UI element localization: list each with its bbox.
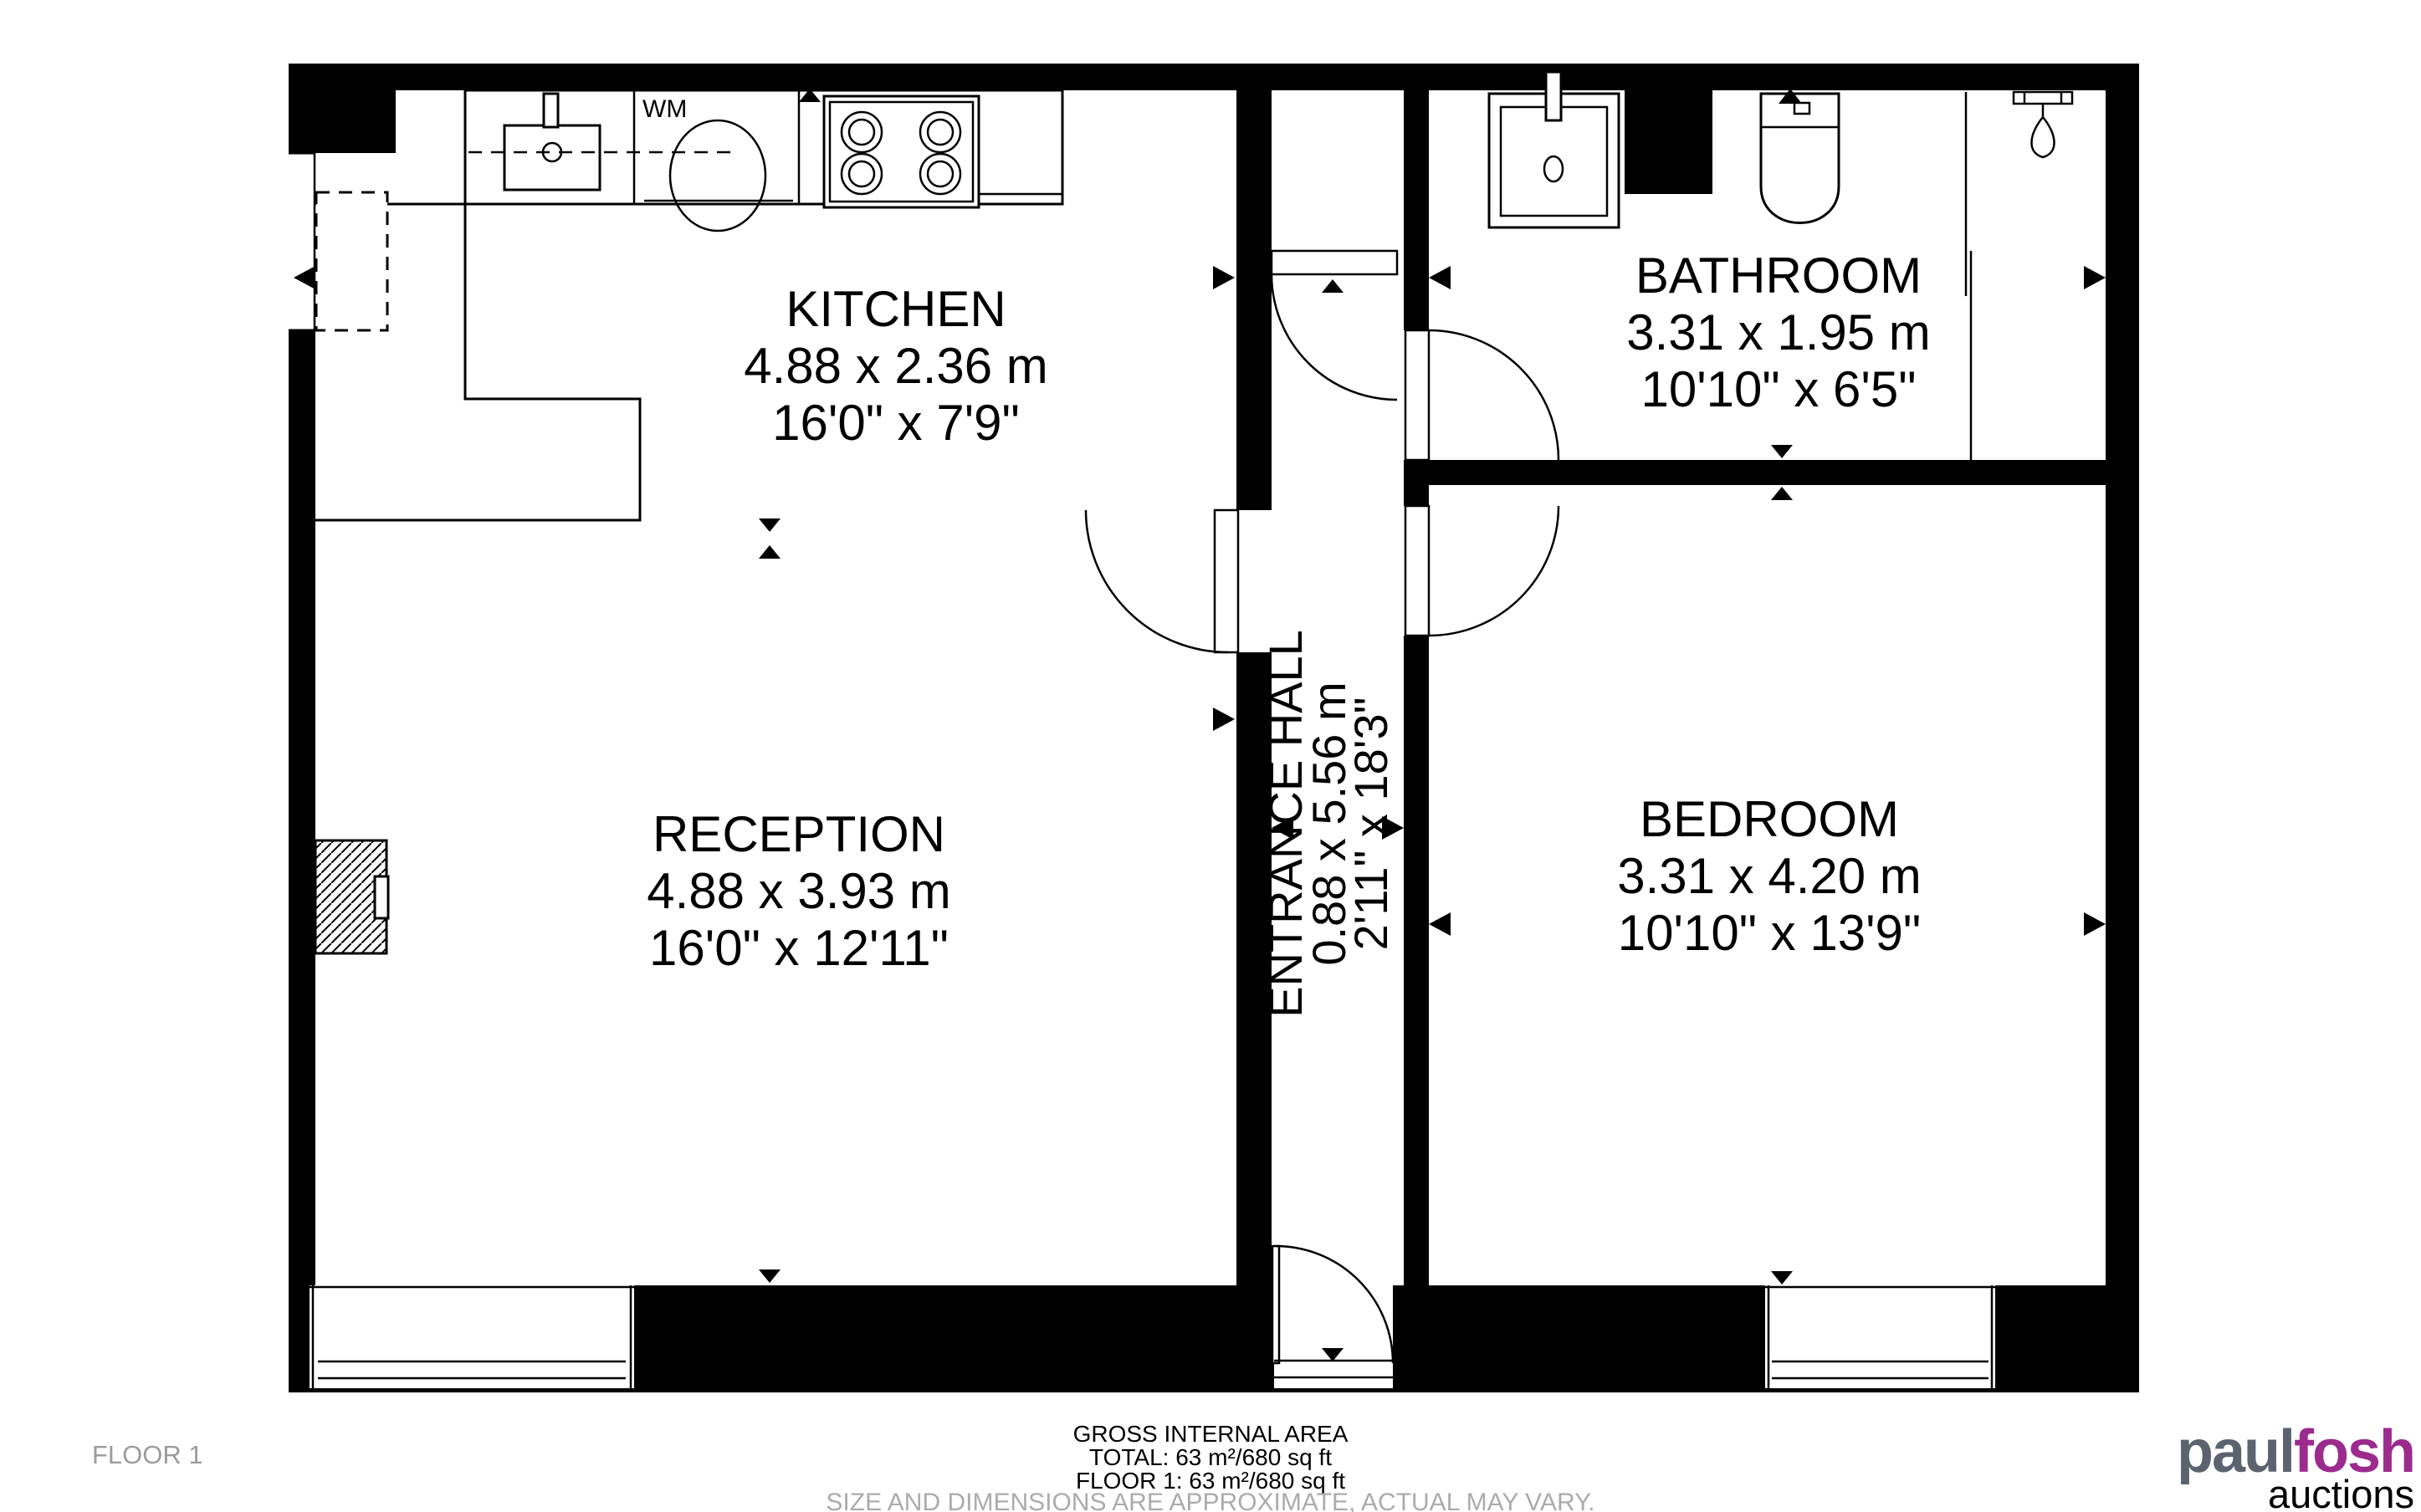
door-swing-arc xyxy=(1429,330,1559,460)
dim-arrow-bathroom-down xyxy=(1771,445,1793,458)
floor-label: FLOOR 1 xyxy=(92,1440,203,1469)
wall-top xyxy=(289,64,2139,90)
room-name: BATHROOM xyxy=(1635,248,1922,304)
washing-machine-icon: WM xyxy=(642,95,793,231)
dim-arrow-bedroom-left xyxy=(1429,912,1451,936)
wall-bottom-3 xyxy=(1393,1285,1765,1392)
dim-arrow-reception-down xyxy=(759,1269,781,1283)
kitchen-window xyxy=(289,153,315,330)
dim-arrow-kitchen-right xyxy=(1213,266,1235,289)
sink-icon xyxy=(468,94,736,190)
room-name: KITCHEN xyxy=(786,281,1006,337)
toilet-icon xyxy=(1761,94,1839,223)
wall-bathroom-bedroom-divider xyxy=(1429,460,2106,485)
dim-arrow-kitchen-left xyxy=(294,266,315,289)
room-label-bathroom: BATHROOM 3.31 x 1.95 m 10'10" x 6'5" xyxy=(1626,248,1931,417)
wall-bottom-1 xyxy=(289,1285,310,1392)
area-total: TOTAL: 63 m²/680 sq ft xyxy=(1089,1444,1332,1470)
brand-logo: paulfosh auctions xyxy=(2177,1418,2414,1512)
reception-fixtures xyxy=(315,840,388,953)
door-leaf xyxy=(1405,330,1429,460)
shower-icon xyxy=(1966,92,2072,460)
room-name: BEDROOM xyxy=(1640,791,1899,847)
door-swing-arc xyxy=(1276,1246,1393,1363)
room-label-kitchen: KITCHEN 4.88 x 2.36 m 16'0" x 7'9" xyxy=(744,281,1048,451)
dim-arrow-bathroom-left xyxy=(1429,266,1451,289)
logo-auctions: auctions xyxy=(2268,1472,2414,1512)
under-counter-appliance xyxy=(316,192,387,330)
hob-icon xyxy=(824,96,979,207)
dim-arrow-bedroom-up xyxy=(1771,487,1793,500)
wall-edge-strip-reception xyxy=(310,1388,634,1392)
wall-hall-right-stub xyxy=(1404,460,1429,506)
wall-left-upper xyxy=(289,90,315,153)
room-dims-imperial: 2'11" x 18'3" xyxy=(1344,697,1397,951)
dim-arrow-hall-up xyxy=(1322,279,1344,293)
door-swing-arc xyxy=(1272,274,1397,400)
room-dims-metric: 4.88 x 2.36 m xyxy=(744,338,1048,394)
wall-right xyxy=(2106,90,2139,1285)
chimney-notch xyxy=(375,876,388,918)
wall-bathroom-stub xyxy=(1625,90,1712,194)
room-dims-metric: 4.88 x 3.93 m xyxy=(647,863,951,919)
room-dims-imperial: 16'0" x 7'9" xyxy=(772,395,1020,451)
wall-bottom-4 xyxy=(1995,1285,2139,1392)
door-leaf xyxy=(1272,1246,1279,1363)
gross-internal-area-title: GROSS INTERNAL AREA xyxy=(1073,1421,1349,1447)
room-dims-metric: 3.31 x 1.95 m xyxy=(1626,304,1931,360)
room-label-entrance-hall: ENTRANCE HALL 0.88 x 5.56 m 2'11" x 18'3… xyxy=(1259,630,1397,1018)
wall-edge-strip-frontdoor xyxy=(1274,1388,1393,1392)
room-label-bedroom: BEDROOM 3.31 x 4.20 m 10'10" x 13'9" xyxy=(1617,791,1922,961)
door-swing-arc xyxy=(1086,510,1228,652)
reception-window xyxy=(310,1285,634,1388)
dim-arrow-kitchen-down xyxy=(759,518,781,532)
wall-hall-right-upper xyxy=(1404,90,1429,330)
room-dims-imperial: 16'0" x 12'11" xyxy=(649,920,949,976)
dim-arrow-reception-right xyxy=(1213,707,1235,731)
dim-arrow-hall-down xyxy=(1322,1348,1344,1361)
room-name: RECEPTION xyxy=(653,806,945,862)
wall-hall-right-lower xyxy=(1404,636,1429,1285)
wall-bottom-2 xyxy=(634,1285,1274,1392)
floorplan-page: WM xyxy=(0,0,2421,1512)
bedroom-door xyxy=(1405,506,1559,636)
door-leaf xyxy=(1215,510,1238,652)
footer: FLOOR 1 GROSS INTERNAL AREA TOTAL: 63 m²… xyxy=(92,1421,1595,1512)
dim-arrow-bedroom-down xyxy=(1771,1271,1793,1285)
basin-icon xyxy=(1489,72,1619,227)
room-dims-imperial: 10'10" x 13'9" xyxy=(1618,905,1921,961)
reception-door xyxy=(1086,510,1238,652)
disclaimer: SIZE AND DIMENSIONS ARE APPROXIMATE, ACT… xyxy=(826,1489,1594,1512)
dim-arrow-bathroom-right xyxy=(2084,266,2106,289)
door-swing-arc xyxy=(1429,506,1559,636)
wall-left-lower xyxy=(289,330,315,1285)
room-dims-metric: 3.31 x 4.20 m xyxy=(1617,848,1922,904)
door-leaf xyxy=(1405,506,1429,636)
dim-arrow-bedroom-right xyxy=(2084,912,2106,936)
washing-machine-label: WM xyxy=(642,95,687,123)
wall-edge-strip-bedroom xyxy=(1765,1388,1995,1392)
dim-arrow-reception-up xyxy=(759,545,781,559)
bathroom-door xyxy=(1405,330,1559,460)
bedroom-window xyxy=(1765,1285,1995,1388)
floorplan-canvas: WM xyxy=(0,0,2421,1512)
wall-hall-left-upper xyxy=(1236,90,1272,510)
room-label-reception: RECEPTION 4.88 x 3.93 m 16'0" x 12'11" xyxy=(647,806,951,976)
hall-top-door xyxy=(1272,251,1397,400)
door-leaf xyxy=(1272,251,1397,274)
room-dims-imperial: 10'10" x 6'5" xyxy=(1640,361,1916,417)
